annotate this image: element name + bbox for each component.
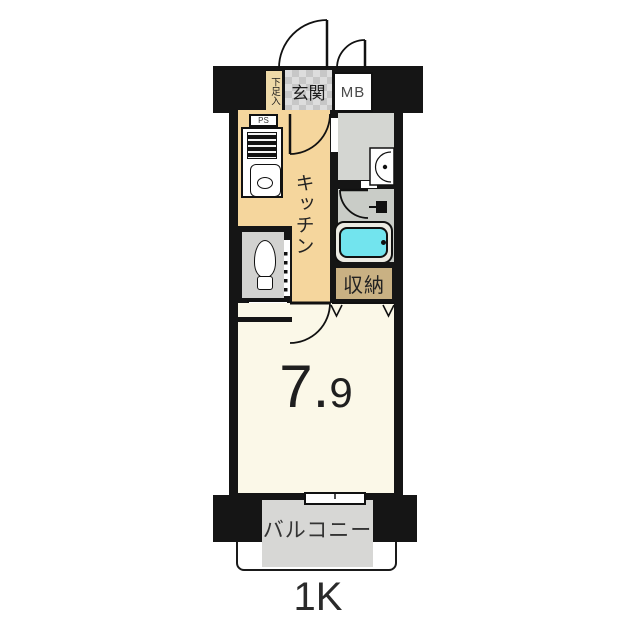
main-room-door-arc (290, 303, 330, 343)
closet-folding-door-mark (331, 305, 342, 316)
entrance-door-arc (279, 20, 327, 68)
bathroom-door-arc (340, 190, 368, 218)
toilet-door-tick (284, 252, 288, 256)
toilet-door-tick (284, 279, 288, 283)
door-swing-overlay (0, 0, 640, 640)
floor-plan: 下足入 玄関 MB PS キッチン PS 収納 7. 9 (0, 0, 640, 640)
washbasin-drain (383, 165, 387, 169)
toilet-door-tick (284, 261, 288, 265)
closet-folding-door-mark (383, 305, 394, 316)
meter-box-door-arc (337, 40, 365, 68)
toilet-door-tick (284, 288, 288, 292)
kitchen-door-arc (290, 114, 330, 154)
toilet-door-tick (284, 270, 288, 274)
